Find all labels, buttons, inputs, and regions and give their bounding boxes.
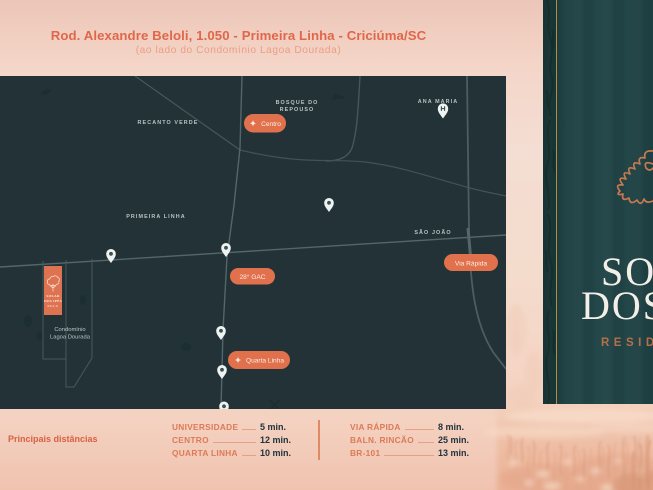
svg-text:Centro: Centro [261, 121, 281, 128]
svg-text:Lagoa Dourada: Lagoa Dourada [50, 335, 91, 341]
svg-text:RESID: RESID [48, 305, 59, 308]
svg-text:PRIMEIRA LINHA: PRIMEIRA LINHA [126, 214, 186, 220]
svg-text:DOS IPÊS: DOS IPÊS [44, 298, 62, 303]
svg-text:Quarta Linha: Quarta Linha [246, 358, 284, 365]
svg-text:REPOUSO: REPOUSO [280, 107, 315, 113]
svg-text:Condomínio: Condomínio [54, 327, 85, 333]
svg-text:BOSQUE DO: BOSQUE DO [276, 100, 319, 106]
svg-text:28° GAC: 28° GAC [239, 273, 265, 281]
svg-text:SÃO JOÃO: SÃO JOÃO [414, 229, 451, 236]
svg-text:RECANTO VERDE: RECANTO VERDE [138, 120, 199, 126]
svg-text:Via Rápida: Via Rápida [455, 260, 487, 267]
svg-text:ANA MARIA: ANA MARIA [418, 99, 459, 105]
svg-text:SOLAR: SOLAR [46, 294, 60, 298]
